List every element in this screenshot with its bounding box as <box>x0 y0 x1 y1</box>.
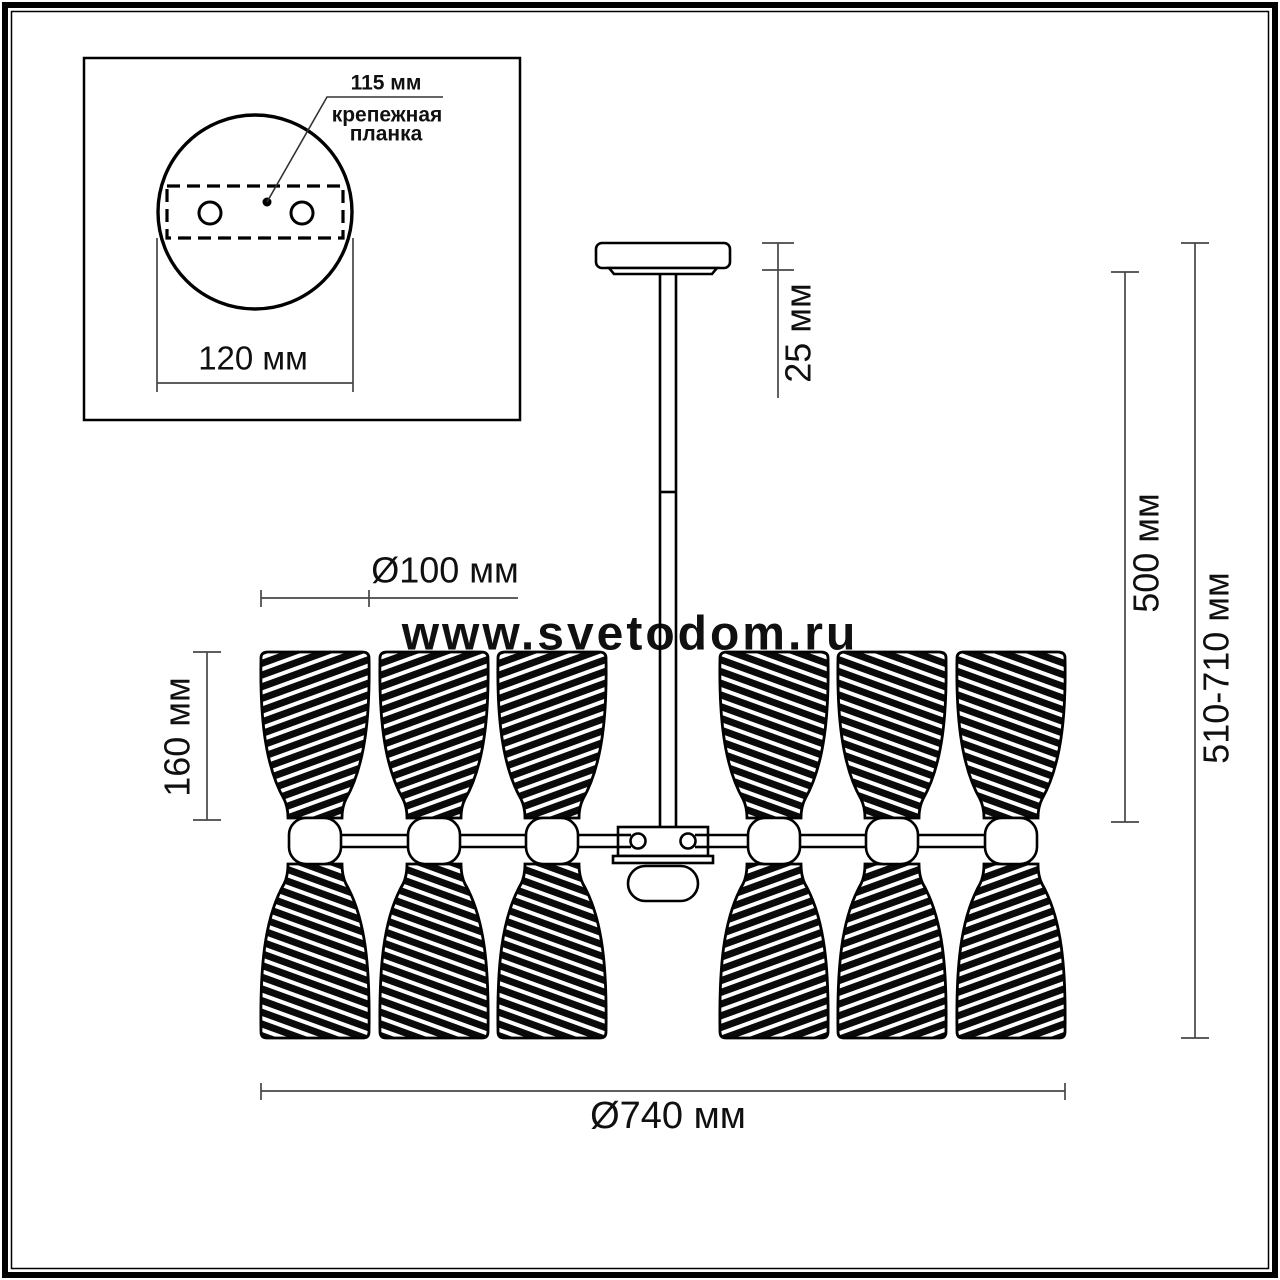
overall-height-label: 510-710 мм <box>1196 572 1237 764</box>
canopy-diameter-label: 120 мм <box>198 340 308 377</box>
chandelier-dimension-drawing: www.svetodom.ru 115 мм крепежная планка … <box>0 0 1280 1280</box>
lower-shade <box>838 864 946 1038</box>
upper-shade <box>261 652 369 818</box>
lower-shade <box>380 864 488 1038</box>
hole-spacing-label: 115 мм <box>351 72 422 95</box>
dim-canopy-height: 25 мм <box>762 243 819 398</box>
mounting-detail-inset: 115 мм крепежная планка 120 мм <box>84 58 520 420</box>
screw-hole-right <box>291 202 313 224</box>
technical-drawing-page: www.svetodom.ru 115 мм крепежная планка … <box>0 0 1280 1280</box>
upper-shade <box>957 652 1065 818</box>
ceiling-canopy <box>596 243 730 268</box>
ball-joint <box>526 818 578 864</box>
hub-bottom-plate <box>613 856 713 863</box>
dim-rod-section: 500 мм <box>1111 272 1167 822</box>
dim-shade-diameter: Ø100 мм <box>261 550 519 607</box>
hub-pivot-left <box>631 834 646 849</box>
rod-section-label: 500 мм <box>1126 493 1167 613</box>
central-hub-assembly <box>613 827 713 901</box>
hub-pivot-right <box>681 834 696 849</box>
shade-diameter-label: Ø100 мм <box>371 550 519 591</box>
upper-shade <box>838 652 946 818</box>
finial-capsule <box>628 866 698 901</box>
upper-shade <box>380 652 488 818</box>
upper-shade <box>720 652 828 818</box>
shade-height-label: 160 мм <box>157 677 198 797</box>
lower-shade <box>957 864 1065 1038</box>
dim-shade-height: 160 мм <box>157 652 221 820</box>
ball-joint <box>748 818 800 864</box>
ball-joint <box>985 818 1037 864</box>
ball-joint <box>408 818 460 864</box>
dim-overall-height: 510-710 мм <box>1181 243 1237 1038</box>
ceiling-mount-and-rod <box>596 243 730 828</box>
lower-shade <box>261 864 369 1038</box>
dim-overall-diameter: Ø740 мм <box>261 1083 1065 1137</box>
upper-shade <box>498 652 606 818</box>
ball-joint <box>289 818 341 864</box>
lower-shade <box>498 864 606 1038</box>
overall-diameter-label: Ø740 мм <box>590 1095 746 1137</box>
screw-hole-left <box>199 202 221 224</box>
bracket-label-line2: планка <box>350 123 423 146</box>
lower-shade <box>720 864 828 1038</box>
canopy-lip <box>609 268 717 274</box>
canopy-height-label: 25 мм <box>778 283 819 383</box>
ball-joint <box>866 818 918 864</box>
